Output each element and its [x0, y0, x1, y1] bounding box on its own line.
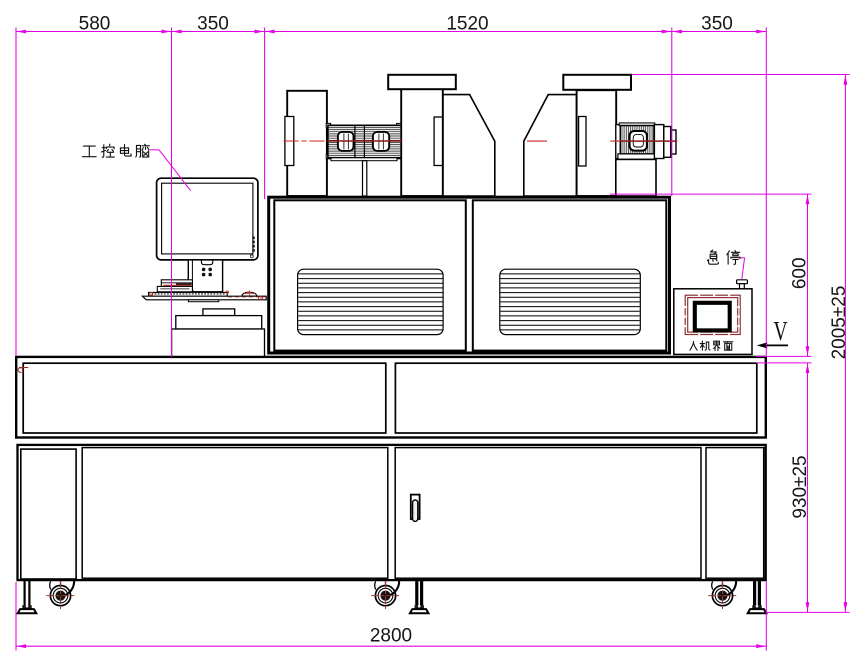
svg-text:580: 580 — [79, 13, 111, 34]
svg-text:600: 600 — [790, 257, 811, 289]
svg-text:2005±25: 2005±25 — [829, 286, 850, 360]
svg-text:1520: 1520 — [446, 13, 488, 34]
svg-text:350: 350 — [701, 13, 733, 34]
svg-text:2800: 2800 — [370, 626, 412, 647]
svg-text:350: 350 — [197, 13, 229, 34]
svg-text:930±25: 930±25 — [790, 455, 811, 518]
svg-text:V: V — [774, 316, 788, 346]
